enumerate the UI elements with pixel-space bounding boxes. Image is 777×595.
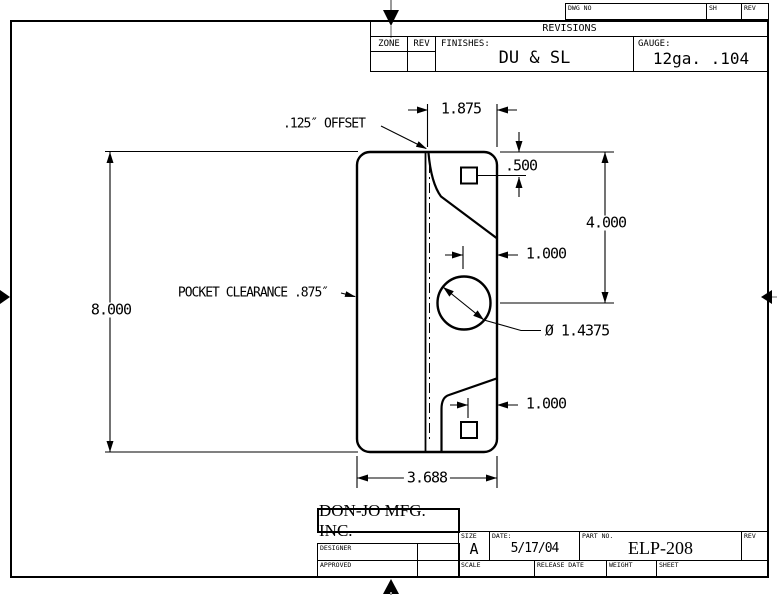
date-label: DATE: — [492, 533, 512, 540]
zone-cell: ZONE — [371, 37, 408, 71]
latch-hole-circle — [438, 277, 491, 330]
plate-outline — [357, 152, 497, 452]
approved-cell: APPROVED — [318, 561, 418, 577]
designer-row: DESIGNER — [318, 544, 459, 560]
plate-geometry — [357, 152, 497, 452]
dim-hole-diameter: Ø 1.4375 — [545, 324, 609, 339]
sheet-cell: SHEET — [656, 561, 768, 577]
dim-hole-to-edge-mid: 1.000 — [526, 247, 566, 262]
dwg-no-cell: DWG NO — [566, 4, 706, 19]
rev-label-title: REV — [744, 533, 756, 540]
rev-label: REV — [408, 37, 435, 52]
approved-label: APPROVED — [320, 562, 351, 569]
weight-cell: WEIGHT — [606, 561, 656, 577]
signoff-rows: DESIGNER APPROVED — [317, 543, 460, 578]
finishes-label: FINISHES: — [441, 39, 490, 49]
top-square-hole — [461, 168, 477, 184]
finishes-cell: FINISHES: DU & SL — [436, 37, 634, 71]
note-offset: .125″ OFFSET — [283, 118, 365, 131]
registration-arrow-right-icon — [761, 290, 777, 304]
scale-cell: SCALE — [459, 561, 534, 577]
dim-flange-width: 1.875 — [438, 102, 484, 117]
rev-label-top: REV — [744, 5, 756, 12]
dim-plate-height: 8.000 — [88, 303, 134, 318]
revisions-block: REVISIONS ZONE REV FINISHES: DU & SL GAU… — [370, 20, 769, 72]
gauge-label: GAUGE: — [638, 39, 671, 49]
dim-plate-width: 3.688 — [404, 471, 450, 486]
sh-label: SH — [709, 5, 717, 12]
note-pocket-clearance: POCKET CLEARANCE .875″ — [178, 287, 328, 300]
top-cut-line — [429, 153, 497, 238]
scale-label: SCALE — [461, 562, 481, 569]
gauge-cell: GAUGE: 12ga. .104 — [634, 37, 768, 71]
designer-label: DESIGNER — [320, 545, 351, 552]
sheet-label: SHEET — [659, 562, 679, 569]
rev-cell: REV — [408, 37, 436, 71]
dim-hole-offset-top: .500 — [502, 159, 540, 174]
dwg-no-label: DWG NO — [568, 5, 591, 12]
registration-arrow-bottom-icon — [383, 579, 399, 595]
dwg-number-strip: DWG NO SH REV — [565, 3, 769, 20]
date-cell: DATE: 5/17/04 — [489, 532, 579, 560]
weight-label: WEIGHT — [609, 562, 632, 569]
company-name: DON-JO MFG. INC. — [319, 501, 458, 541]
registration-arrow-left-icon — [0, 290, 10, 304]
rev-cell-top: REV — [741, 4, 768, 19]
release-date-cell: RELEASE DATE — [534, 561, 606, 577]
title-block: SIZE A DATE: 5/17/04 PART NO. ELP-208 RE… — [458, 531, 769, 578]
revisions-title: REVISIONS — [371, 20, 768, 37]
drawing-sheet: .125″ OFFSET 1.875 .500 4.000 1.000 8.00… — [0, 0, 777, 595]
rev-cell-title: REV — [741, 532, 768, 560]
part-no-label: PART NO. — [582, 533, 613, 540]
bottom-cut-line — [442, 379, 497, 452]
size-label: SIZE — [461, 533, 477, 540]
part-no-cell: PART NO. ELP-208 — [579, 532, 741, 560]
size-cell: SIZE A — [459, 532, 489, 560]
release-date-label: RELEASE DATE — [537, 562, 584, 569]
sh-cell: SH — [706, 4, 741, 19]
designer-cell: DESIGNER — [318, 544, 418, 560]
company-name-box: DON-JO MFG. INC. — [317, 508, 460, 533]
zone-label: ZONE — [371, 37, 407, 52]
approved-row: APPROVED — [318, 560, 459, 577]
dim-hole-to-edge-bottom: 1.000 — [526, 397, 566, 412]
dim-flange-height: 4.000 — [583, 216, 629, 231]
bottom-square-hole — [461, 422, 477, 438]
